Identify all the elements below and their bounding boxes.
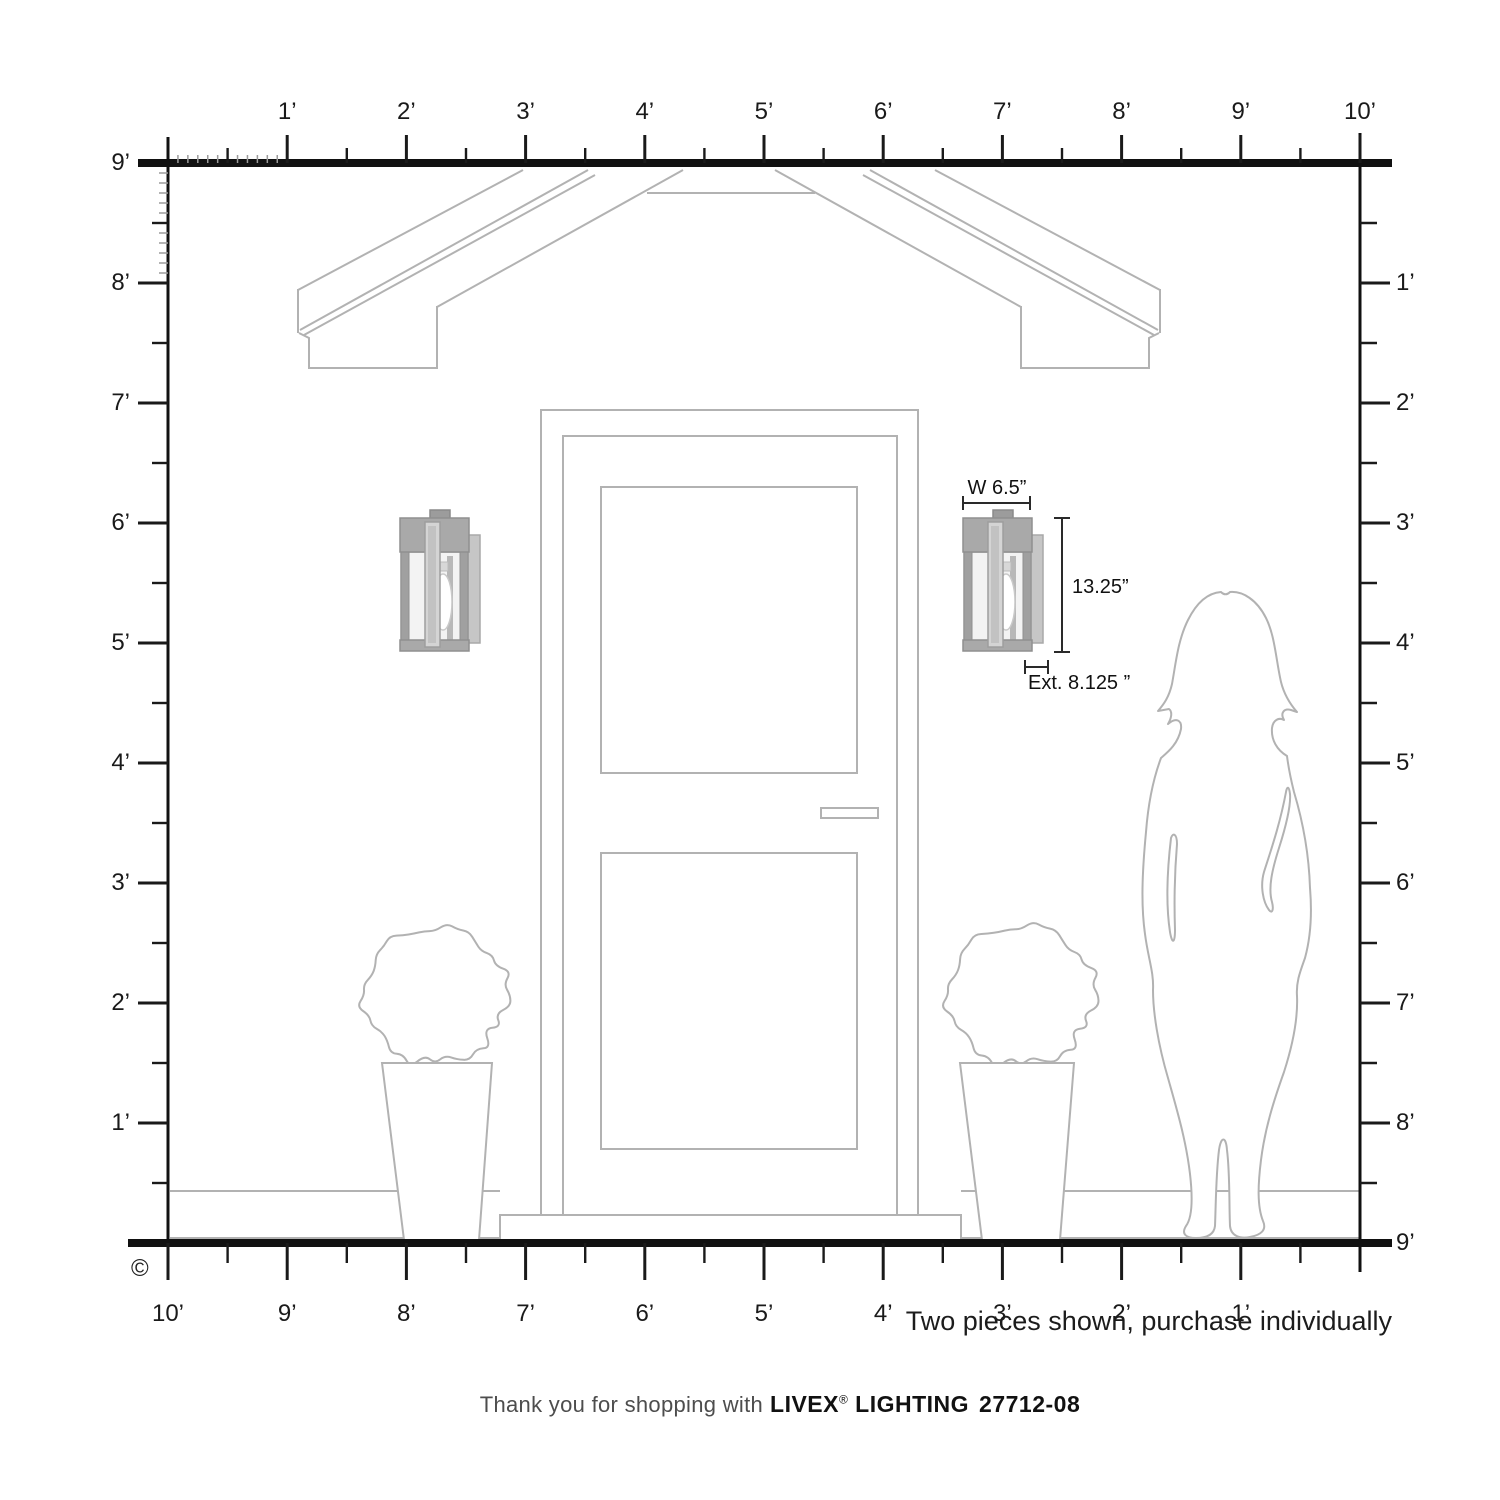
right-wall-lantern: [963, 510, 1043, 651]
top-ruler-label: 4’: [635, 99, 654, 125]
brand-name: LIVEX: [770, 1391, 839, 1417]
left-ruler-label: 1’: [64, 1110, 130, 1136]
top-ruler-label: 1’: [278, 99, 297, 125]
right-ruler-label: 5’: [1396, 750, 1415, 776]
left-planter: [359, 925, 510, 1240]
left-ruler-label: 4’: [64, 750, 130, 776]
bottom-ruler-label: 8’: [397, 1301, 416, 1327]
top-ruler-label: 2’: [397, 99, 416, 125]
bottom-ruler-label: 10’: [152, 1301, 184, 1327]
roof-outline: [298, 170, 1160, 368]
model-number: 27712-08: [979, 1391, 1080, 1417]
left-wall-lantern: [400, 510, 480, 651]
right-ruler-label: 3’: [1396, 510, 1415, 536]
door-step: [500, 1215, 961, 1243]
left-ruler-label: 5’: [64, 630, 130, 656]
top-ruler-label: 9’: [1231, 99, 1250, 125]
product-scale-diagram: 1’2’3’4’5’6’7’8’9’10’9’8’7’6’5’4’3’2’1’1…: [0, 0, 1500, 1500]
right-ruler-label: 6’: [1396, 870, 1415, 896]
thanks-prefix: Thank you for shopping with: [480, 1392, 763, 1417]
top-ruler-label: 6’: [874, 99, 893, 125]
planter-pot-right: [960, 1063, 1074, 1240]
top-ruler-label: 5’: [755, 99, 774, 125]
woman-silhouette: [1142, 592, 1310, 1238]
left-ruler-label: 8’: [64, 270, 130, 296]
left-ruler-label: 9’: [64, 150, 130, 176]
scene-drawing: [0, 0, 1500, 1500]
top-ruler-label: 3’: [516, 99, 535, 125]
right-planter: [943, 923, 1098, 1240]
height-dimension-label: 13.25”: [1072, 576, 1129, 599]
right-ruler-label: 8’: [1396, 1110, 1415, 1136]
top-ruler-label: 10’: [1344, 99, 1376, 125]
copyright-symbol: ©: [131, 1255, 149, 1283]
door-outline: [541, 410, 918, 1215]
top-ruler-label: 7’: [993, 99, 1012, 125]
extension-dimension-label: Ext. 8.125 ”: [1028, 672, 1130, 695]
right-ruler-label: 4’: [1396, 630, 1415, 656]
right-ruler-label: 1’: [1396, 270, 1415, 296]
thank-you-line: Thank you for shopping withLIVEX®LIGHTIN…: [30, 1391, 1500, 1418]
bottom-ruler-bar: [128, 1239, 1392, 1247]
left-ruler-label: 3’: [64, 870, 130, 896]
topiary-bush-left: [359, 925, 510, 1064]
bottom-ruler-label: 4’: [874, 1301, 893, 1327]
top-ruler-label: 8’: [1112, 99, 1131, 125]
bottom-ruler-label: 6’: [635, 1301, 654, 1327]
bottom-ruler-label: 9’: [278, 1301, 297, 1327]
bottom-ruler-label: 5’: [755, 1301, 774, 1327]
right-ruler-label: 2’: [1396, 390, 1415, 416]
brand-suffix: LIGHTING: [855, 1391, 969, 1417]
height-dimension-line: [1054, 518, 1070, 652]
topiary-bush-right: [943, 923, 1098, 1066]
bottom-ruler-label: 7’: [516, 1301, 535, 1327]
left-ruler-label: 7’: [64, 390, 130, 416]
purchase-note: Two pieces shown, purchase individually: [906, 1306, 1392, 1337]
left-ruler-label: 2’: [64, 990, 130, 1016]
right-ruler-label: 7’: [1396, 990, 1415, 1016]
width-dimension-label: W 6.5”: [950, 477, 1044, 500]
left-ruler-label: 6’: [64, 510, 130, 536]
registered-mark: ®: [839, 1393, 848, 1407]
right-ruler-label: 9’: [1396, 1230, 1415, 1256]
planter-pot-left: [382, 1063, 492, 1240]
door-slab: [563, 436, 897, 1215]
